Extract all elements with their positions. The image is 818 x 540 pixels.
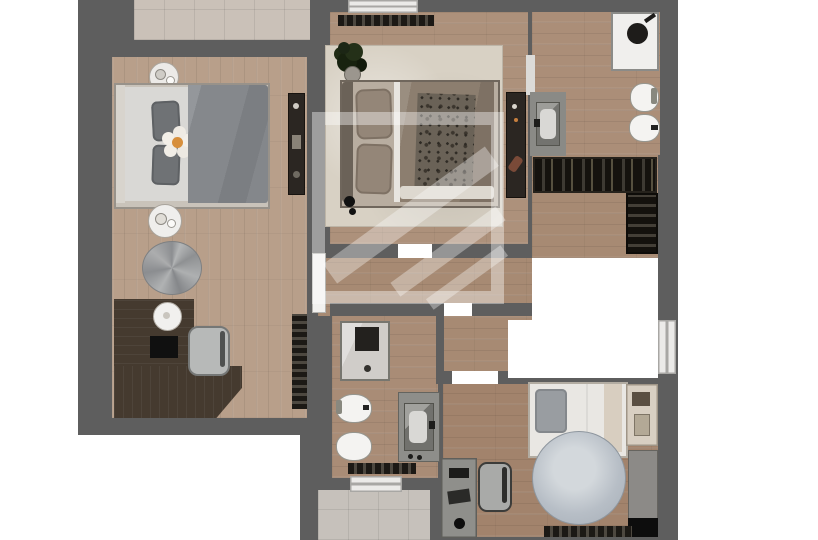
window-bathroom-bottom: [350, 476, 402, 492]
staircase: [626, 193, 658, 254]
wardrobe-rail: [533, 157, 657, 193]
bidet-faucet: [651, 125, 658, 130]
vanity-sink: [404, 403, 434, 451]
coffee-table: [148, 204, 182, 238]
door-leaf-bathroom-top: [526, 55, 535, 95]
nightstand: [626, 384, 658, 446]
door-opening-bedroom-bottom: [452, 371, 498, 384]
console-decor: [293, 171, 300, 178]
terrace-bottom: [318, 490, 430, 540]
nightstand-item: [634, 414, 650, 436]
radiator-bedroom-middle: [338, 15, 434, 26]
bean-bag: [142, 241, 202, 295]
dresser-decor: [507, 155, 524, 173]
console-decor: [292, 135, 301, 149]
sink-bowl: [540, 109, 556, 139]
desk-chair-left: [188, 326, 230, 376]
desk-item: [454, 518, 465, 529]
bed-double-left: [114, 83, 270, 209]
plant: [338, 42, 350, 54]
pillow: [535, 389, 567, 433]
radiator-bedroom-left: [292, 314, 307, 409]
side-table-decor: [155, 69, 166, 80]
door-opening-bathroom-bottom: [444, 303, 472, 316]
shower-top: [611, 12, 659, 71]
toilet-flush: [363, 405, 369, 410]
coffee-table-cup: [167, 219, 176, 228]
headboard: [116, 85, 125, 203]
desk-lamp: [153, 302, 182, 331]
sink-bowl: [409, 411, 427, 443]
toilet-top: [630, 83, 659, 112]
bidet-top: [629, 114, 660, 142]
vanity-bottom: [398, 392, 440, 462]
balcony-top: [134, 0, 310, 40]
vanity-sink: [536, 102, 560, 146]
pillow: [151, 145, 180, 186]
vanity-decor: [408, 454, 413, 459]
toilet-tank: [651, 88, 657, 104]
wall-console: [288, 93, 305, 195]
window-bedroom-middle-top: [348, 0, 418, 13]
desk-bottom: [441, 458, 477, 538]
sink-faucet: [534, 119, 540, 127]
desk-lamp-bulb: [163, 312, 170, 319]
wall-bathroom-bottom-left: [318, 316, 332, 490]
radiator-bathroom-bottom: [348, 463, 416, 474]
shower-fixture: [355, 327, 379, 351]
desk-chair-bottom: [478, 462, 512, 512]
wardrobe-dark-section: [628, 518, 658, 537]
chair-backrest: [502, 467, 507, 503]
nightstand-item: [632, 392, 650, 406]
desk-item: [447, 489, 471, 505]
toilet-bottom: [336, 394, 372, 423]
shower-drain: [364, 365, 371, 372]
laptop: [150, 336, 178, 358]
radiator-bedroom-bottom: [544, 526, 632, 537]
vanity-top: [530, 92, 566, 156]
console-decor: [293, 103, 299, 109]
window-right-wall: [658, 320, 676, 374]
desk-item: [449, 468, 469, 478]
flower-decoration: [172, 137, 183, 148]
coffee-table-cup: [155, 213, 167, 225]
duvet-gray: [188, 85, 268, 203]
shower-arm: [644, 13, 656, 23]
pillow: [151, 100, 181, 141]
dresser-decor: [514, 118, 518, 122]
toilet-tank: [336, 400, 342, 414]
dresser-bedroom-middle: [506, 92, 526, 198]
dresser-decor: [512, 104, 517, 109]
watermark-stripe: [323, 147, 499, 284]
chair-backrest: [220, 331, 225, 367]
wardrobe-bottom: [628, 450, 658, 537]
sink-faucet: [429, 421, 435, 429]
stairwell-void-notch: [508, 320, 532, 378]
shower-bottom: [340, 321, 390, 381]
bidet-bottom: [336, 432, 372, 461]
shower-head: [627, 23, 648, 44]
round-rug: [532, 431, 626, 525]
floor-plan-canvas: [0, 0, 818, 540]
watermark-logo: [312, 112, 504, 304]
stairwell-void: [532, 258, 658, 378]
